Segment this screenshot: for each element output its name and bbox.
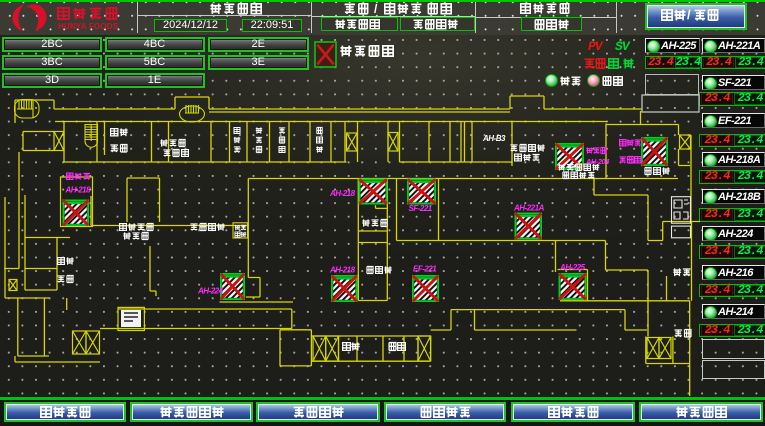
svg-text:AH-218: AH-218	[65, 186, 92, 195]
svg-text:AH-224: AH-224	[197, 287, 224, 296]
svg-text:AH-B3: AH-B3	[482, 134, 506, 143]
svg-text:EF-221: EF-221	[413, 265, 437, 274]
svg-text:AH-218: AH-218	[329, 189, 356, 198]
svg-text:AH-221A: AH-221A	[513, 204, 545, 213]
svg-text:SF-221: SF-221	[409, 204, 433, 213]
svg-text:AH-218: AH-218	[329, 266, 356, 275]
svg-text:AH-225: AH-225	[559, 263, 586, 272]
svg-text:AH-204: AH-204	[585, 157, 610, 166]
